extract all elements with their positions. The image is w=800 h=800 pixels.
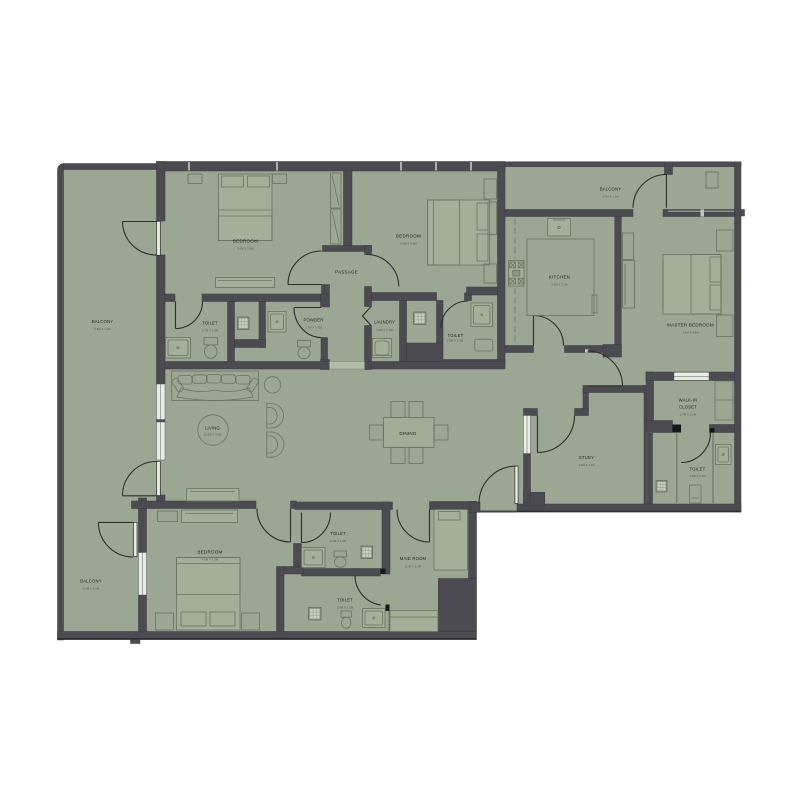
svg-text:BALCONY: BALCONY (80, 579, 101, 584)
svg-text:BALCONY: BALCONY (600, 187, 621, 192)
svg-text:STUDY: STUDY (579, 455, 594, 460)
svg-text:2.2M X 2.0M: 2.2M X 2.0M (405, 565, 422, 569)
svg-text:TOILET: TOILET (330, 531, 346, 536)
svg-text:3.7M X 1.2M: 3.7M X 1.2M (602, 195, 619, 199)
svg-text:2.4M X 1.5M: 2.4M X 1.5M (330, 539, 347, 543)
svg-text:BALCONY: BALCONY (92, 319, 113, 324)
svg-text:2.0M X 1.6M: 2.0M X 1.6M (376, 328, 393, 332)
svg-text:2.7M X 1.6M: 2.7M X 1.6M (202, 329, 219, 333)
svg-text:BEDROOM: BEDROOM (233, 239, 258, 244)
svg-text:10.0M X 4.0M: 10.0M X 4.0M (204, 433, 223, 437)
svg-text:2.5M X 3.0M: 2.5M X 3.0M (83, 587, 100, 591)
svg-text:LAUNDRY: LAUNDRY (374, 320, 395, 325)
svg-text:3.2M X 2.3M: 3.2M X 2.3M (578, 463, 595, 467)
svg-text:DINING: DINING (399, 431, 416, 436)
svg-text:CLOSET: CLOSET (679, 405, 697, 410)
svg-text:WALK-IN: WALK-IN (679, 398, 698, 403)
svg-text:KITCHEN: KITCHEN (549, 275, 571, 280)
svg-text:POWDER: POWDER (303, 318, 323, 323)
svg-text:BEDROOM: BEDROOM (396, 234, 421, 239)
svg-text:2.5M X 7.0M: 2.5M X 7.0M (94, 327, 111, 331)
svg-text:4.0M X 3.6M: 4.0M X 3.6M (400, 242, 417, 246)
svg-text:TOILET: TOILET (202, 321, 218, 326)
svg-text:TOILET: TOILET (690, 467, 706, 472)
svg-text:TOILET: TOILET (448, 333, 464, 338)
svg-text:MAID ROOM: MAID ROOM (400, 556, 427, 561)
svg-text:2.0M X 1.5M: 2.0M X 1.5M (337, 606, 354, 610)
svg-text:3.5M X 4.6M: 3.5M X 4.6M (682, 331, 699, 335)
svg-text:2.6M X 1.6M: 2.6M X 1.6M (447, 339, 464, 343)
svg-text:BEDROOM: BEDROOM (197, 550, 222, 555)
svg-text:LIVING: LIVING (205, 426, 220, 431)
svg-text:2.4M X 2.1M: 2.4M X 2.1M (689, 474, 706, 478)
svg-text:3.0M X 3.0M: 3.0M X 3.0M (551, 283, 568, 287)
svg-text:PASSAGE: PASSAGE (335, 270, 358, 275)
svg-text:TOILET: TOILET (337, 598, 353, 603)
svg-text:MASTER BEDROOM: MASTER BEDROOM (667, 323, 714, 328)
svg-text:5.0M X 3.6M: 5.0M X 3.6M (237, 247, 254, 251)
svg-text:1.7M X 1.7M: 1.7M X 1.7M (305, 326, 322, 330)
svg-text:4.0M X 3.5M: 4.0M X 3.5M (202, 558, 219, 562)
svg-text:2.4M X 1.6M: 2.4M X 1.6M (680, 413, 697, 417)
